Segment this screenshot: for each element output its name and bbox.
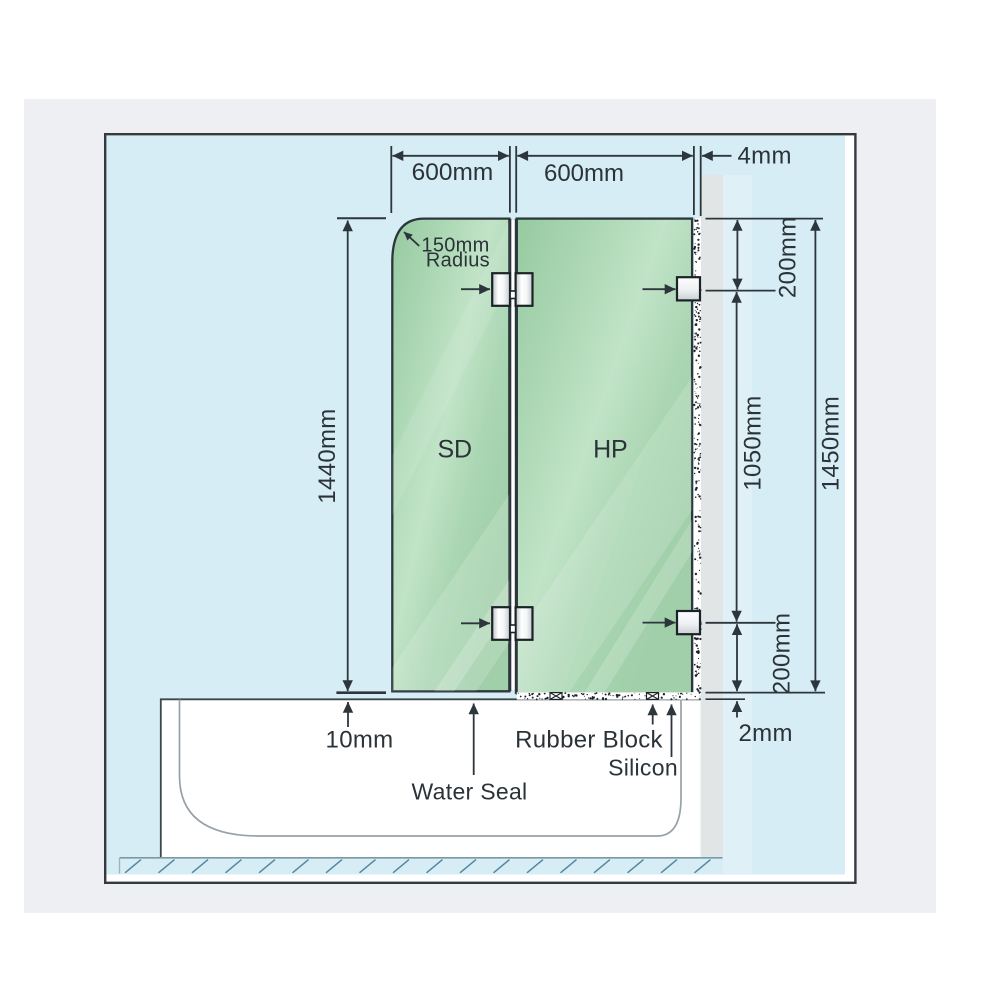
svg-text:600mm: 600mm	[412, 159, 494, 186]
svg-text:4mm: 4mm	[738, 143, 792, 170]
svg-text:Radius: Radius	[426, 250, 490, 272]
svg-text:1440mm: 1440mm	[314, 408, 341, 503]
svg-text:HP: HP	[593, 436, 627, 464]
svg-text:600mm: 600mm	[544, 160, 624, 187]
svg-text:Rubber Block: Rubber Block	[515, 727, 663, 754]
svg-text:1450mm: 1450mm	[818, 396, 845, 491]
svg-text:2mm: 2mm	[739, 720, 793, 747]
svg-text:200mm: 200mm	[775, 217, 802, 299]
svg-text:SD: SD	[438, 436, 472, 464]
svg-text:Water Seal: Water Seal	[412, 779, 528, 805]
svg-text:200mm: 200mm	[769, 613, 796, 695]
svg-text:10mm: 10mm	[326, 727, 394, 754]
svg-text:Silicon: Silicon	[608, 755, 678, 781]
svg-text:1050mm: 1050mm	[740, 395, 767, 490]
